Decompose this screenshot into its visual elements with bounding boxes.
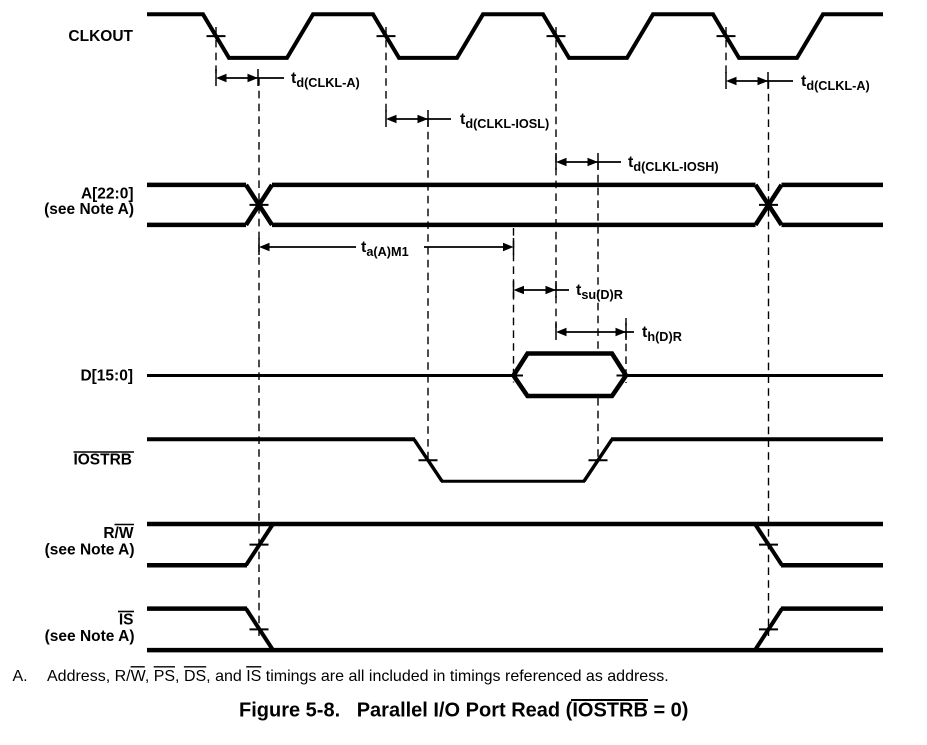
svg-text:(see Note A): (see Note A): [44, 201, 134, 218]
svg-text:Address, R/W, PS, DS, and IS t: Address, R/W, PS, DS, and IS timings are…: [47, 668, 669, 685]
svg-text:(see Note A): (see Note A): [45, 628, 135, 645]
svg-text:A.: A.: [13, 668, 28, 685]
svg-text:A[22:0]: A[22:0]: [81, 186, 134, 203]
svg-text:R/W: R/W: [103, 525, 134, 542]
svg-text:(see Note A): (see Note A): [45, 542, 135, 559]
svg-text:Figure 5-8. Parallel I/O Port: Figure 5-8. Parallel I/O Port Read (IOST…: [239, 700, 688, 722]
svg-text:CLKOUT: CLKOUT: [68, 28, 133, 45]
svg-text:IOSTRB: IOSTRB: [73, 452, 132, 469]
svg-text:D[15:0]: D[15:0]: [80, 368, 133, 385]
svg-text:IS: IS: [119, 612, 134, 629]
